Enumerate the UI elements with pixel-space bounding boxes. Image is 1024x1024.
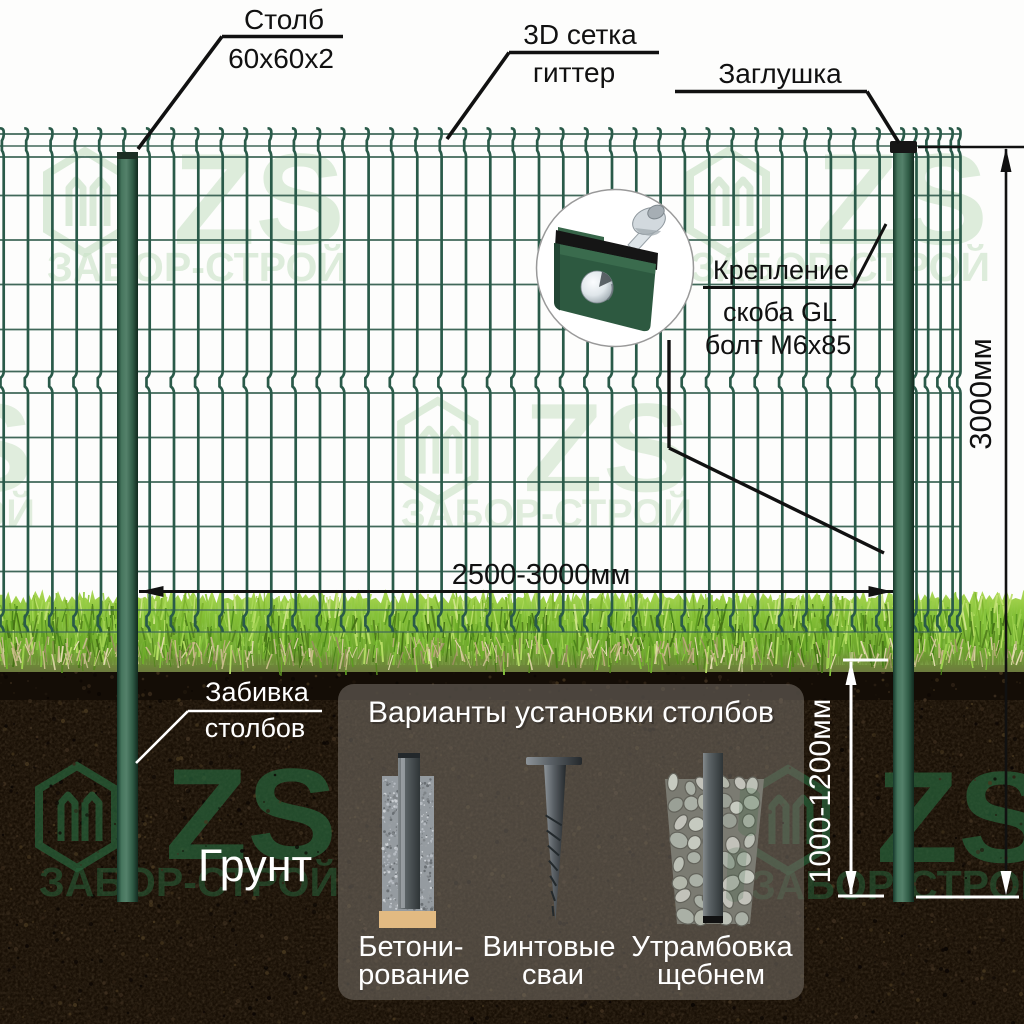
svg-text:3D сетка: 3D сетка	[523, 19, 637, 50]
svg-text:60х60х2: 60х60х2	[228, 43, 334, 74]
svg-text:Варианты установки столбов: Варианты установки столбов	[368, 696, 774, 729]
svg-text:рование: рование	[358, 959, 470, 991]
svg-text:гиттер: гиттер	[533, 57, 615, 88]
svg-text:ЗАБОР-СТРОЙ: ЗАБОР-СТРОЙ	[0, 490, 35, 536]
svg-text:ЗАБОР-СТРОЙ: ЗАБОР-СТРОЙ	[401, 490, 692, 536]
svg-text:1000-1200мм: 1000-1200мм	[804, 699, 837, 884]
svg-text:столбов: столбов	[205, 713, 306, 743]
svg-text:Забивка: Забивка	[205, 677, 310, 707]
svg-text:Столб: Столб	[244, 4, 324, 35]
svg-text:щебнем: щебнем	[657, 959, 765, 991]
svg-text:сваи: сваи	[522, 959, 584, 991]
svg-text:Грунт: Грунт	[198, 840, 312, 891]
svg-text:Заглушка: Заглушка	[718, 58, 842, 89]
svg-text:скоба GL: скоба GL	[723, 297, 837, 327]
svg-text:Крепление: Крепление	[713, 255, 849, 285]
svg-text:3000мм: 3000мм	[963, 338, 998, 450]
svg-text:болт М6х85: болт М6х85	[705, 330, 852, 360]
svg-text:2500-3000мм: 2500-3000мм	[452, 559, 631, 591]
